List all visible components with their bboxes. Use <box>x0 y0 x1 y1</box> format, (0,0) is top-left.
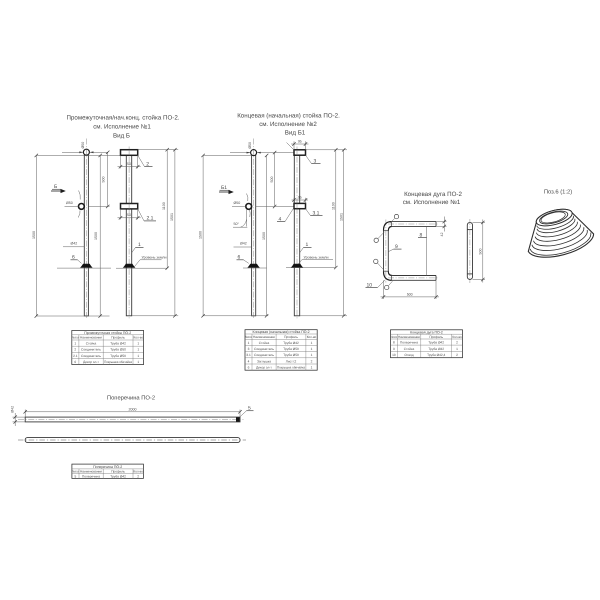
svg-text:Концевая (начальная) стойка ПО: Концевая (начальная) стойка ПО-2. <box>237 112 340 119</box>
svg-text:Труба Ø42: Труба Ø42 <box>428 341 444 345</box>
svg-text:Кол-во: Кол-во <box>134 336 144 340</box>
svg-text:Лист t2: Лист t2 <box>286 359 297 363</box>
svg-text:Труба Ø42,4: Труба Ø42,4 <box>427 353 445 357</box>
svg-text:500: 500 <box>102 177 106 183</box>
svg-text:1: 1 <box>137 354 139 358</box>
svg-text:1500: 1500 <box>199 231 203 239</box>
svg-text:Вид Б: Вид Б <box>113 133 130 140</box>
svg-text:50: 50 <box>127 213 131 217</box>
svg-text:Покрышка обечайка: Покрышка обечайка <box>104 360 132 364</box>
svg-text:Труба Ø50: Труба Ø50 <box>110 348 126 352</box>
svg-text:2.1: 2.1 <box>73 354 78 358</box>
svg-text:2.1: 2.1 <box>147 216 154 222</box>
svg-text:95: 95 <box>298 196 302 200</box>
svg-text:50°: 50° <box>234 222 240 226</box>
svg-text:Соединитель: Соединитель <box>81 354 101 358</box>
svg-text:Профиль: Профиль <box>284 335 298 339</box>
svg-text:500: 500 <box>407 292 413 296</box>
svg-text:Поперечина: Поперечина <box>82 474 100 478</box>
svg-text:см. Исполнение №2: см. Исполнение №2 <box>259 121 317 128</box>
svg-text:Концевая дуга ПО-2: Концевая дуга ПО-2 <box>404 191 462 198</box>
svg-text:Ø50: Ø50 <box>248 142 252 149</box>
svg-text:1500: 1500 <box>32 231 36 239</box>
svg-text:Стойка: Стойка <box>259 341 270 345</box>
svg-text:Уровень земли: Уровень земли <box>142 256 167 260</box>
svg-text:5: 5 <box>248 405 251 411</box>
svg-text:Профиль: Профиль <box>111 336 125 340</box>
svg-text:Концевая (начальная) стойка ПО: Концевая (начальная) стойка ПО-2 <box>253 330 310 334</box>
svg-text:1: 1 <box>74 342 76 346</box>
svg-text:3.1: 3.1 <box>313 210 320 216</box>
svg-text:500: 500 <box>270 177 274 183</box>
svg-text:см. Исполнение №1: см. Исполнение №1 <box>403 199 461 206</box>
svg-text:Кол-во: Кол-во <box>307 335 317 339</box>
svg-text:3.1: 3.1 <box>246 353 251 357</box>
svg-text:Поз.6 (1:2): Поз.6 (1:2) <box>544 189 572 196</box>
svg-text:Труба Ø50: Труба Ø50 <box>110 354 126 358</box>
svg-text:9: 9 <box>393 347 395 351</box>
svg-text:2: 2 <box>456 353 458 357</box>
svg-text:500: 500 <box>478 249 482 255</box>
svg-text:3: 3 <box>248 347 250 351</box>
svg-text:1100: 1100 <box>162 202 166 210</box>
svg-text:1: 1 <box>456 347 458 351</box>
svg-text:Профиль: Профиль <box>429 335 443 339</box>
svg-text:Кол-во: Кол-во <box>133 470 143 474</box>
svg-text:2000: 2000 <box>129 407 137 411</box>
svg-text:Ø42: Ø42 <box>11 406 15 413</box>
svg-text:Декор эл-т: Декор эл-т <box>256 366 272 370</box>
svg-text:Вид Б1: Вид Б1 <box>285 130 306 137</box>
svg-text:Труба Ø50: Труба Ø50 <box>283 347 299 351</box>
svg-text:Отвод: Отвод <box>404 353 413 357</box>
svg-text:Поперечина ПО-2: Поперечина ПО-2 <box>93 465 122 469</box>
svg-text:Наименование: Наименование <box>80 470 102 474</box>
svg-text:10: 10 <box>392 353 396 357</box>
svg-text:2: 2 <box>74 348 76 352</box>
svg-text:50: 50 <box>127 162 131 166</box>
svg-text:Поперечина: Поперечина <box>400 341 418 345</box>
svg-text:1501: 1501 <box>339 213 343 221</box>
svg-text:Ø50: Ø50 <box>66 201 73 205</box>
svg-text:Наименование: Наименование <box>80 336 102 340</box>
svg-text:Покрышка обечайка: Покрышка обечайка <box>277 366 305 370</box>
svg-text:1: 1 <box>311 347 313 351</box>
svg-text:1: 1 <box>311 366 313 370</box>
svg-text:8: 8 <box>393 341 395 345</box>
svg-text:Ø42: Ø42 <box>71 242 78 246</box>
svg-text:Уровень земли: Уровень земли <box>304 255 329 259</box>
svg-text:2: 2 <box>311 359 313 363</box>
svg-text:Соединитель: Соединитель <box>254 353 274 357</box>
svg-text:Ø50: Ø50 <box>81 142 85 149</box>
svg-text:1: 1 <box>311 353 313 357</box>
svg-text:Ø42: Ø42 <box>240 242 247 246</box>
svg-text:2: 2 <box>146 161 149 167</box>
svg-text:Ø50: Ø50 <box>234 201 241 205</box>
svg-text:1: 1 <box>137 360 139 364</box>
svg-text:Декор эл-т: Декор эл-т <box>83 360 99 364</box>
svg-text:Труба Ø50: Труба Ø50 <box>283 353 299 357</box>
svg-text:1: 1 <box>137 348 139 352</box>
svg-text:1: 1 <box>248 341 250 345</box>
svg-text:6: 6 <box>248 366 250 370</box>
svg-text:95: 95 <box>298 140 302 144</box>
svg-text:Профиль: Профиль <box>111 470 125 474</box>
svg-text:Труба Ø42: Труба Ø42 <box>283 341 299 345</box>
svg-text:1501: 1501 <box>170 213 174 221</box>
svg-text:Труба Ø42: Труба Ø42 <box>110 474 126 478</box>
svg-text:Стойка: Стойка <box>86 342 97 346</box>
svg-text:Заглушка: Заглушка <box>257 359 271 363</box>
svg-text:№поз: №поз <box>72 336 79 340</box>
svg-text:Наименование: Наименование <box>398 335 420 339</box>
svg-text:Концевая дуга ПО-2: Концевая дуга ПО-2 <box>410 330 443 334</box>
svg-text:№поз: №поз <box>391 335 398 339</box>
svg-text:Стойка: Стойка <box>404 347 415 351</box>
svg-text:Наименование: Наименование <box>253 335 275 339</box>
svg-text:4: 4 <box>248 359 250 363</box>
svg-text:3: 3 <box>314 158 317 164</box>
svg-text:см. Исполнение №1: см. Исполнение №1 <box>93 124 151 131</box>
svg-text:1: 1 <box>137 342 139 346</box>
svg-text:42: 42 <box>440 233 444 237</box>
svg-text:2: 2 <box>456 341 458 345</box>
svg-text:1500: 1500 <box>94 232 98 240</box>
svg-text:Поперечина ПО-2: Поперечина ПО-2 <box>107 395 155 402</box>
svg-text:Труба Ø42: Труба Ø42 <box>110 342 126 346</box>
svg-text:1100: 1100 <box>331 202 335 210</box>
svg-text:№поз: №поз <box>245 335 252 339</box>
svg-text:Труба Ø42: Труба Ø42 <box>428 347 444 351</box>
svg-text:№поз: №поз <box>72 470 79 474</box>
svg-text:Промежуточная стойка ПО-2: Промежуточная стойка ПО-2 <box>84 331 131 335</box>
svg-text:2: 2 <box>137 474 139 478</box>
svg-text:1: 1 <box>311 341 313 345</box>
svg-text:Соединитель: Соединитель <box>81 348 101 352</box>
svg-text:Промежуточная/нач.конц. стойка: Промежуточная/нач.конц. стойка ПО-2. <box>66 115 179 122</box>
svg-text:5: 5 <box>75 474 77 478</box>
svg-text:Кол-во: Кол-во <box>452 335 462 339</box>
svg-text:1500: 1500 <box>262 232 266 240</box>
svg-text:6: 6 <box>74 360 76 364</box>
svg-text:Соединитель: Соединитель <box>254 347 274 351</box>
